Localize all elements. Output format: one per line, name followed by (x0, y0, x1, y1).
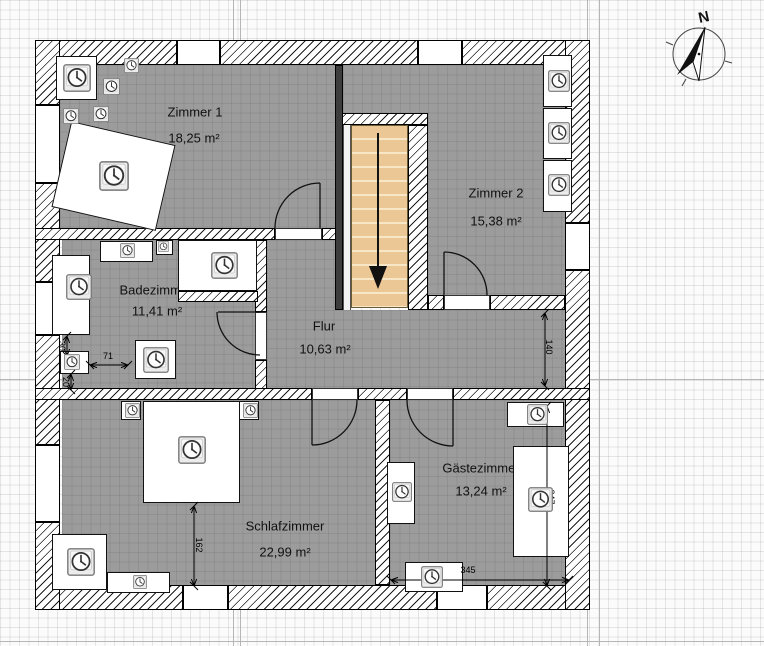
clock-icon[interactable] (421, 566, 443, 588)
stair-railing[interactable] (343, 125, 351, 310)
clock-icon[interactable] (178, 436, 206, 464)
wall-segment[interactable] (453, 388, 590, 400)
clock-icon[interactable] (93, 106, 109, 122)
clock-icon[interactable] (548, 122, 570, 144)
clock-icon[interactable] (528, 487, 553, 512)
staircase[interactable] (351, 125, 408, 308)
room-area-label-flur: 10,63 m² (299, 342, 350, 357)
compass-rose[interactable]: N (666, 8, 732, 86)
clock-icon[interactable] (124, 58, 139, 73)
clock-icon[interactable] (120, 243, 135, 258)
door-threshold[interactable] (255, 312, 267, 360)
clock-icon[interactable] (63, 108, 79, 124)
clock-icon[interactable] (125, 403, 140, 418)
window[interactable] (183, 585, 228, 610)
dimension-label-gaeste-breite[interactable]: 345 (460, 565, 475, 575)
wall-segment[interactable] (337, 113, 428, 125)
wall-segment[interactable] (35, 388, 312, 400)
clock-icon[interactable] (99, 161, 129, 191)
wall-segment[interactable] (565, 270, 590, 610)
window[interactable] (418, 40, 462, 65)
clock-icon[interactable] (548, 70, 570, 92)
clock-icon[interactable] (158, 241, 169, 252)
clock-icon[interactable] (64, 354, 80, 370)
room-area-label-badezimmer: 11,41 m² (132, 304, 182, 319)
clock-icon[interactable] (527, 404, 548, 425)
door-threshold[interactable] (312, 388, 358, 400)
wall-segment[interactable] (490, 295, 565, 310)
clock-icon[interactable] (63, 64, 91, 92)
dimension-label-bett-abstand[interactable]: 162 (194, 537, 204, 552)
door-threshold[interactable] (444, 295, 490, 310)
wall-segment[interactable] (220, 40, 418, 65)
room-area-label-schlafzimmer: 22,99 m² (259, 545, 310, 560)
compass-needle-dark (677, 27, 705, 75)
room-label-gaestezimmer: Gästezimmer (442, 461, 519, 476)
window[interactable] (177, 40, 220, 65)
grid-major-line (0, 641, 764, 642)
clock-icon[interactable] (392, 482, 412, 502)
room-label-zimmer2: Zimmer 2 (469, 186, 524, 201)
floor-plan-canvas: Zimmer 118,25 m²Zimmer 215,38 m²Badezimm… (0, 0, 764, 646)
north-label: N (697, 8, 711, 27)
wall-segment[interactable] (335, 65, 343, 310)
room-area-label-gaestezimmer: 13,24 m² (455, 484, 506, 499)
room-label-zimmer1: Zimmer 1 (168, 105, 223, 120)
wall-segment[interactable] (408, 125, 428, 310)
dimension-label-bad-71[interactable]: 71 (103, 351, 113, 361)
window[interactable] (35, 105, 60, 183)
window[interactable] (565, 223, 590, 270)
clock-icon[interactable] (243, 403, 258, 418)
clock-icon[interactable] (143, 347, 169, 373)
clock-icon[interactable] (67, 548, 95, 576)
compass-needle-light (693, 27, 705, 81)
dimension-label-flur-height[interactable]: 140 (544, 339, 554, 354)
window[interactable] (35, 445, 60, 522)
dimension-label-bad-30[interactable]: 30 (57, 341, 67, 351)
room-area-label-zimmer2: 15,38 m² (470, 214, 521, 229)
clock-icon[interactable] (133, 575, 147, 589)
grid-major-line (599, 0, 600, 646)
room-floor-flur[interactable] (267, 240, 335, 310)
wall-segment[interactable] (178, 291, 258, 302)
dimension-label-bad-20[interactable]: 20 (61, 377, 71, 387)
wall-segment[interactable] (358, 388, 407, 400)
clock-icon[interactable] (211, 252, 238, 279)
room-label-schlafzimmer: Schlafzimmer (246, 519, 325, 534)
clock-icon[interactable] (66, 274, 92, 300)
door-threshold[interactable] (407, 388, 453, 400)
room-floor-zimmer2[interactable] (343, 65, 428, 113)
clock-icon[interactable] (103, 78, 120, 95)
room-label-flur: Flur (313, 319, 335, 334)
wall-segment[interactable] (428, 295, 444, 310)
room-area-label-zimmer1: 18,25 m² (168, 131, 219, 146)
door-threshold[interactable] (275, 228, 322, 240)
clock-icon[interactable] (548, 174, 570, 196)
